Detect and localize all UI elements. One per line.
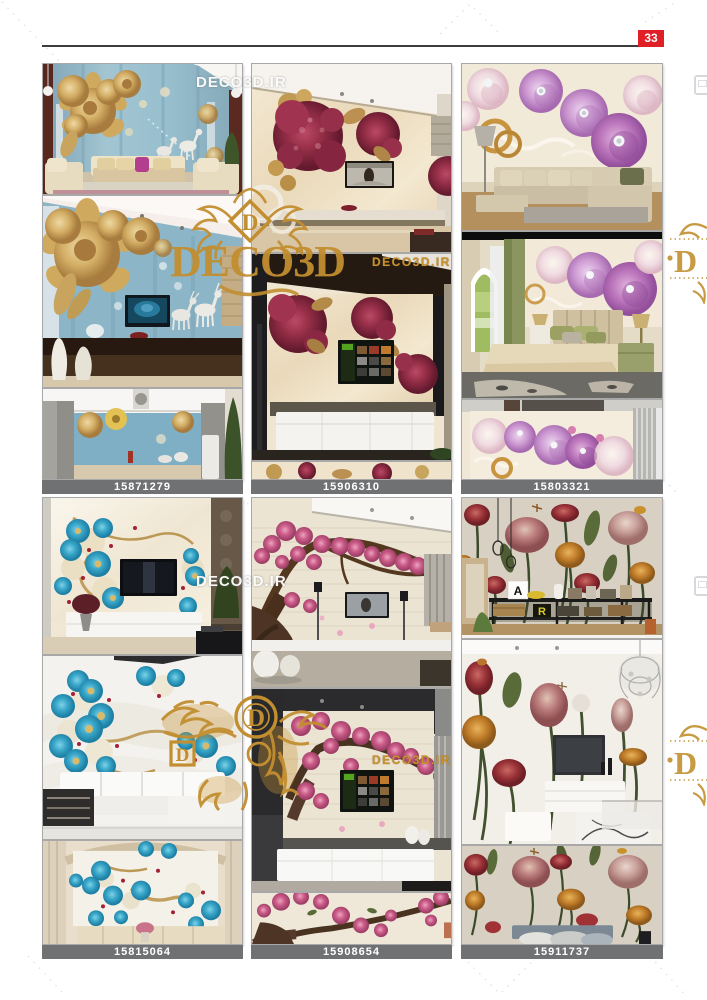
- svg-text:D: D: [674, 745, 697, 781]
- svg-text:A: A: [514, 584, 523, 598]
- svg-text:DECO3D: DECO3D: [170, 237, 346, 286]
- svg-text:R: R: [538, 606, 546, 618]
- svg-text:D: D: [176, 745, 190, 766]
- svg-text:D: D: [674, 243, 697, 279]
- svg-text:D: D: [242, 210, 259, 235]
- svg-text:D: D: [247, 705, 265, 732]
